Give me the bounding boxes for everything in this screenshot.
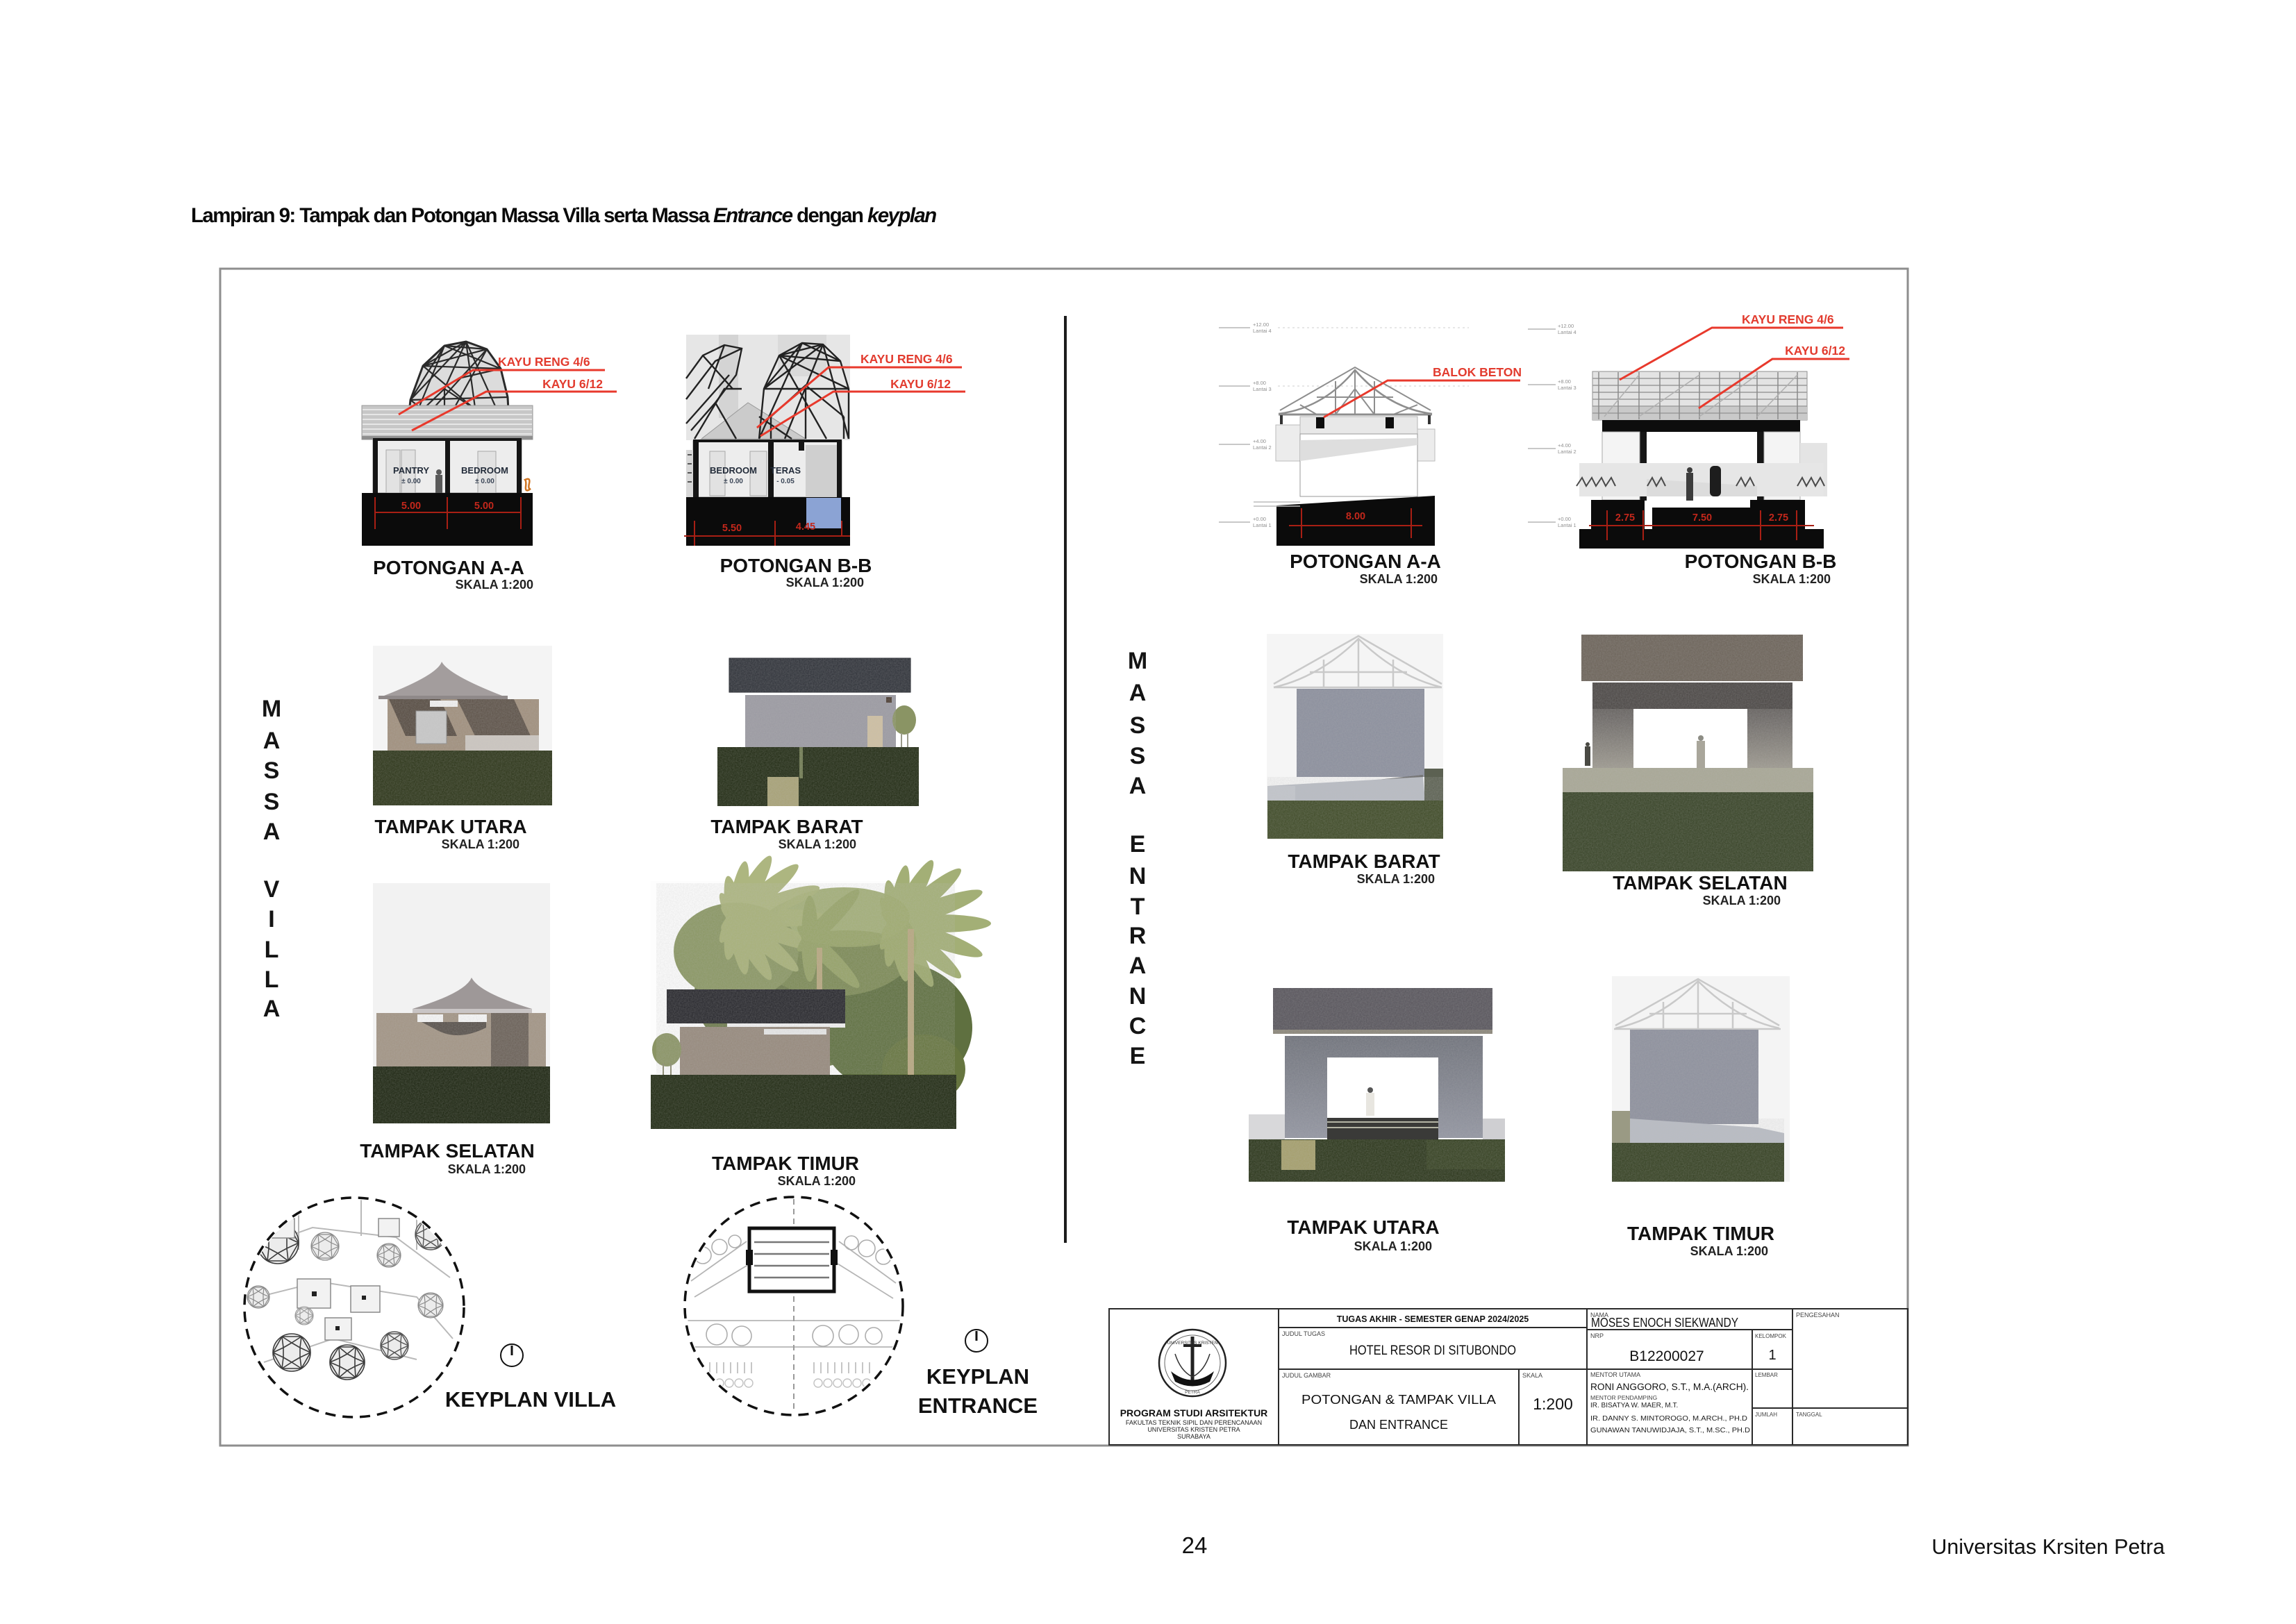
- svg-text:SKALA 1:200: SKALA 1:200: [442, 837, 519, 851]
- svg-text:1: 1: [1768, 1348, 1776, 1363]
- svg-text:ENTRANCE: ENTRANCE: [918, 1393, 1038, 1418]
- svg-text:JUDUL TUGAS: JUDUL TUGAS: [1282, 1330, 1325, 1337]
- svg-text:A: A: [263, 996, 281, 1022]
- svg-text:A: A: [1129, 680, 1147, 706]
- svg-text:KEYPLAN VILLA: KEYPLAN VILLA: [445, 1387, 616, 1412]
- svg-text:± 0.00: ± 0.00: [401, 478, 421, 485]
- svg-text:TUGAS AKHIR - SEMESTER GENAP 2: TUGAS AKHIR - SEMESTER GENAP 2024/2025: [1337, 1314, 1529, 1324]
- svg-text:Lantai 1: Lantai 1: [1558, 522, 1577, 528]
- svg-text:KAYU RENG 4/6: KAYU RENG 4/6: [860, 352, 953, 366]
- svg-text:+0.00: +0.00: [1253, 516, 1266, 522]
- svg-text:TAMPAK BARAT: TAMPAK BARAT: [1288, 851, 1440, 872]
- svg-text:PETRA: PETRA: [1185, 1390, 1200, 1395]
- svg-text:A: A: [1129, 773, 1147, 799]
- svg-text:POTONGAN B-B: POTONGAN B-B: [720, 555, 872, 576]
- svg-text:8.00: 8.00: [1346, 511, 1365, 522]
- svg-text:TAMPAK TIMUR: TAMPAK TIMUR: [712, 1153, 859, 1174]
- svg-text:S: S: [1130, 712, 1146, 739]
- svg-text:IR. DANNY S. MINTOROGO, M.ARCH: IR. DANNY S. MINTOROGO, M.ARCH., PH.D: [1590, 1415, 1747, 1423]
- svg-text:TAMPAK TIMUR: TAMPAK TIMUR: [1627, 1223, 1774, 1244]
- svg-text:S: S: [264, 789, 280, 815]
- svg-text:E: E: [1130, 831, 1146, 857]
- svg-text:POTONGAN & TAMPAK VILLA: POTONGAN & TAMPAK VILLA: [1301, 1393, 1496, 1407]
- svg-text:SKALA 1:200: SKALA 1:200: [1753, 572, 1831, 586]
- svg-text:Lantai 2: Lantai 2: [1253, 444, 1272, 451]
- svg-text:Lantai 3: Lantai 3: [1253, 386, 1272, 392]
- svg-text:A: A: [263, 728, 281, 754]
- svg-text:I: I: [268, 906, 274, 932]
- svg-text:BEDROOM: BEDROOM: [461, 465, 508, 476]
- svg-text:POTONGAN B-B: POTONGAN B-B: [1685, 551, 1837, 572]
- svg-text:Universitas Krsiten Petra: Universitas Krsiten Petra: [1931, 1535, 2165, 1559]
- svg-text:S: S: [1130, 743, 1146, 769]
- svg-text:TAMPAK SELATAN: TAMPAK SELATAN: [360, 1140, 534, 1162]
- svg-text:S: S: [264, 757, 280, 784]
- svg-text:V: V: [264, 876, 280, 903]
- svg-text:A: A: [1129, 953, 1147, 979]
- svg-text:MENTOR UTAMA: MENTOR UTAMA: [1590, 1371, 1640, 1378]
- svg-text:Lantai 1: Lantai 1: [1253, 522, 1272, 528]
- svg-text:N: N: [1129, 863, 1147, 889]
- svg-text:+4.00: +4.00: [1558, 442, 1571, 449]
- svg-text:N: N: [1129, 983, 1147, 1010]
- svg-text:TAMPAK UTARA: TAMPAK UTARA: [1287, 1216, 1439, 1238]
- svg-text:C: C: [1129, 1013, 1147, 1039]
- svg-text:KAYU 6/12: KAYU 6/12: [1785, 344, 1845, 358]
- svg-text:KAYU RENG 4/6: KAYU RENG 4/6: [498, 355, 590, 369]
- svg-text:5.00: 5.00: [474, 501, 494, 512]
- svg-text:MOSES ENOCH SIEKWANDY: MOSES ENOCH SIEKWANDY: [1591, 1316, 1738, 1330]
- svg-text:Lampiran 9: Tampak dan Potonga: Lampiran 9: Tampak dan Potongan Massa Vi…: [191, 204, 936, 227]
- svg-text:GUNAWAN TANUWIDJAJA, S.T., M.S: GUNAWAN TANUWIDJAJA, S.T., M.SC., PH.D: [1590, 1427, 1750, 1434]
- svg-text:L: L: [265, 937, 279, 963]
- svg-text:SKALA 1:200: SKALA 1:200: [786, 576, 864, 589]
- svg-text:1:200: 1:200: [1533, 1395, 1573, 1413]
- svg-text:LEMBAR: LEMBAR: [1755, 1372, 1778, 1378]
- svg-text:KEYPLAN: KEYPLAN: [926, 1364, 1029, 1389]
- svg-text:DAN ENTRANCE: DAN ENTRANCE: [1349, 1418, 1448, 1432]
- svg-text:SKALA 1:200: SKALA 1:200: [456, 578, 533, 592]
- svg-text:TAMPAK SELATAN: TAMPAK SELATAN: [1613, 872, 1787, 894]
- svg-text:KELOMPOK: KELOMPOK: [1755, 1333, 1787, 1339]
- svg-text:Lantai 3: Lantai 3: [1558, 385, 1577, 391]
- svg-text:JUMLAH: JUMLAH: [1755, 1412, 1777, 1418]
- svg-text:B12200027: B12200027: [1629, 1348, 1704, 1364]
- svg-text:SKALA 1:200: SKALA 1:200: [1703, 894, 1781, 907]
- svg-text:M: M: [1128, 648, 1147, 674]
- svg-text:POTONGAN A-A: POTONGAN A-A: [373, 557, 524, 578]
- svg-text:PROGRAM STUDI ARSITEKTUR: PROGRAM STUDI ARSITEKTUR: [1120, 1407, 1268, 1418]
- svg-text:R: R: [1129, 923, 1147, 949]
- svg-text:KAYU RENG 4/6: KAYU RENG 4/6: [1742, 312, 1834, 326]
- svg-text:24: 24: [1182, 1532, 1208, 1558]
- svg-text:5.50: 5.50: [722, 523, 742, 534]
- svg-text:BEDROOM: BEDROOM: [710, 465, 757, 476]
- svg-text:T: T: [1131, 894, 1145, 920]
- svg-text:Lantai 4: Lantai 4: [1253, 328, 1272, 334]
- svg-text:SKALA 1:200: SKALA 1:200: [448, 1162, 526, 1176]
- svg-text:NRP: NRP: [1590, 1332, 1604, 1339]
- svg-text:KAYU 6/12: KAYU 6/12: [542, 377, 603, 391]
- svg-text:UNIVERSITAS KRISTEN PETRA: UNIVERSITAS KRISTEN PETRA: [1147, 1426, 1240, 1433]
- svg-text:2.75: 2.75: [1769, 512, 1788, 524]
- svg-text:+0.00: +0.00: [1558, 516, 1571, 522]
- svg-text:MENTOR PENDAMPING: MENTOR PENDAMPING: [1590, 1394, 1657, 1401]
- svg-text:SKALA 1:200: SKALA 1:200: [779, 837, 856, 851]
- svg-text:FAKULTAS TEKNIK SIPIL DAN PERE: FAKULTAS TEKNIK SIPIL DAN PERENCANAAN: [1126, 1419, 1262, 1426]
- svg-text:± 0.00: ± 0.00: [475, 478, 494, 485]
- svg-text:SKALA 1:200: SKALA 1:200: [1357, 872, 1435, 886]
- svg-text:SKALA 1:200: SKALA 1:200: [1360, 572, 1438, 586]
- svg-text:+12.00: +12.00: [1558, 323, 1574, 329]
- svg-text:A: A: [263, 819, 281, 845]
- svg-text:- 0.05: - 0.05: [776, 478, 795, 485]
- svg-text:SKALA 1:200: SKALA 1:200: [1690, 1244, 1768, 1258]
- svg-text:RONI ANGGORO, S.T., M.A.(ARCH): RONI ANGGORO, S.T., M.A.(ARCH).: [1590, 1382, 1749, 1392]
- svg-text:HOTEL RESOR DI SITUBONDO: HOTEL RESOR DI SITUBONDO: [1349, 1343, 1516, 1358]
- svg-text:UNIVERSITAS KRISTEN: UNIVERSITAS KRISTEN: [1167, 1341, 1218, 1346]
- svg-text:M: M: [262, 696, 281, 722]
- svg-text:+8.00: +8.00: [1558, 378, 1571, 385]
- svg-text:TERAS: TERAS: [770, 465, 801, 476]
- svg-text:5.00: 5.00: [401, 501, 421, 512]
- svg-text:Lantai 2: Lantai 2: [1558, 449, 1577, 455]
- svg-text:PENGESAHAN: PENGESAHAN: [1796, 1312, 1840, 1319]
- svg-text:+4.00: +4.00: [1253, 438, 1266, 444]
- svg-text:PANTRY: PANTRY: [393, 465, 429, 476]
- svg-text:L: L: [265, 966, 279, 993]
- svg-text:SKALA: SKALA: [1522, 1372, 1542, 1379]
- svg-text:IR. BISATYA W. MAER, M.T.: IR. BISATYA W. MAER, M.T.: [1590, 1402, 1678, 1409]
- svg-text:TAMPAK BARAT: TAMPAK BARAT: [710, 816, 863, 837]
- svg-text:BALOK BETON: BALOK BETON: [1433, 365, 1522, 379]
- svg-text:Lantai 4: Lantai 4: [1558, 329, 1577, 335]
- svg-text:KAYU 6/12: KAYU 6/12: [890, 377, 951, 391]
- svg-text:+12.00: +12.00: [1253, 321, 1269, 328]
- svg-text:SKALA 1:200: SKALA 1:200: [778, 1174, 856, 1188]
- svg-text:± 0.00: ± 0.00: [724, 478, 743, 485]
- svg-text:SKALA 1:200: SKALA 1:200: [1354, 1239, 1432, 1253]
- svg-text:4.45: 4.45: [796, 521, 815, 533]
- svg-text:7.50: 7.50: [1692, 512, 1712, 524]
- svg-text:TANGGAL: TANGGAL: [1796, 1412, 1822, 1418]
- svg-text:E: E: [1130, 1043, 1146, 1069]
- svg-text:+8.00: +8.00: [1253, 380, 1266, 386]
- svg-text:JUDUL GAMBAR: JUDUL GAMBAR: [1282, 1372, 1331, 1379]
- svg-text:TAMPAK UTARA: TAMPAK UTARA: [374, 816, 526, 837]
- svg-text:2.75: 2.75: [1615, 512, 1635, 524]
- svg-text:POTONGAN A-A: POTONGAN A-A: [1290, 551, 1441, 572]
- svg-text:SURABAYA: SURABAYA: [1177, 1433, 1211, 1440]
